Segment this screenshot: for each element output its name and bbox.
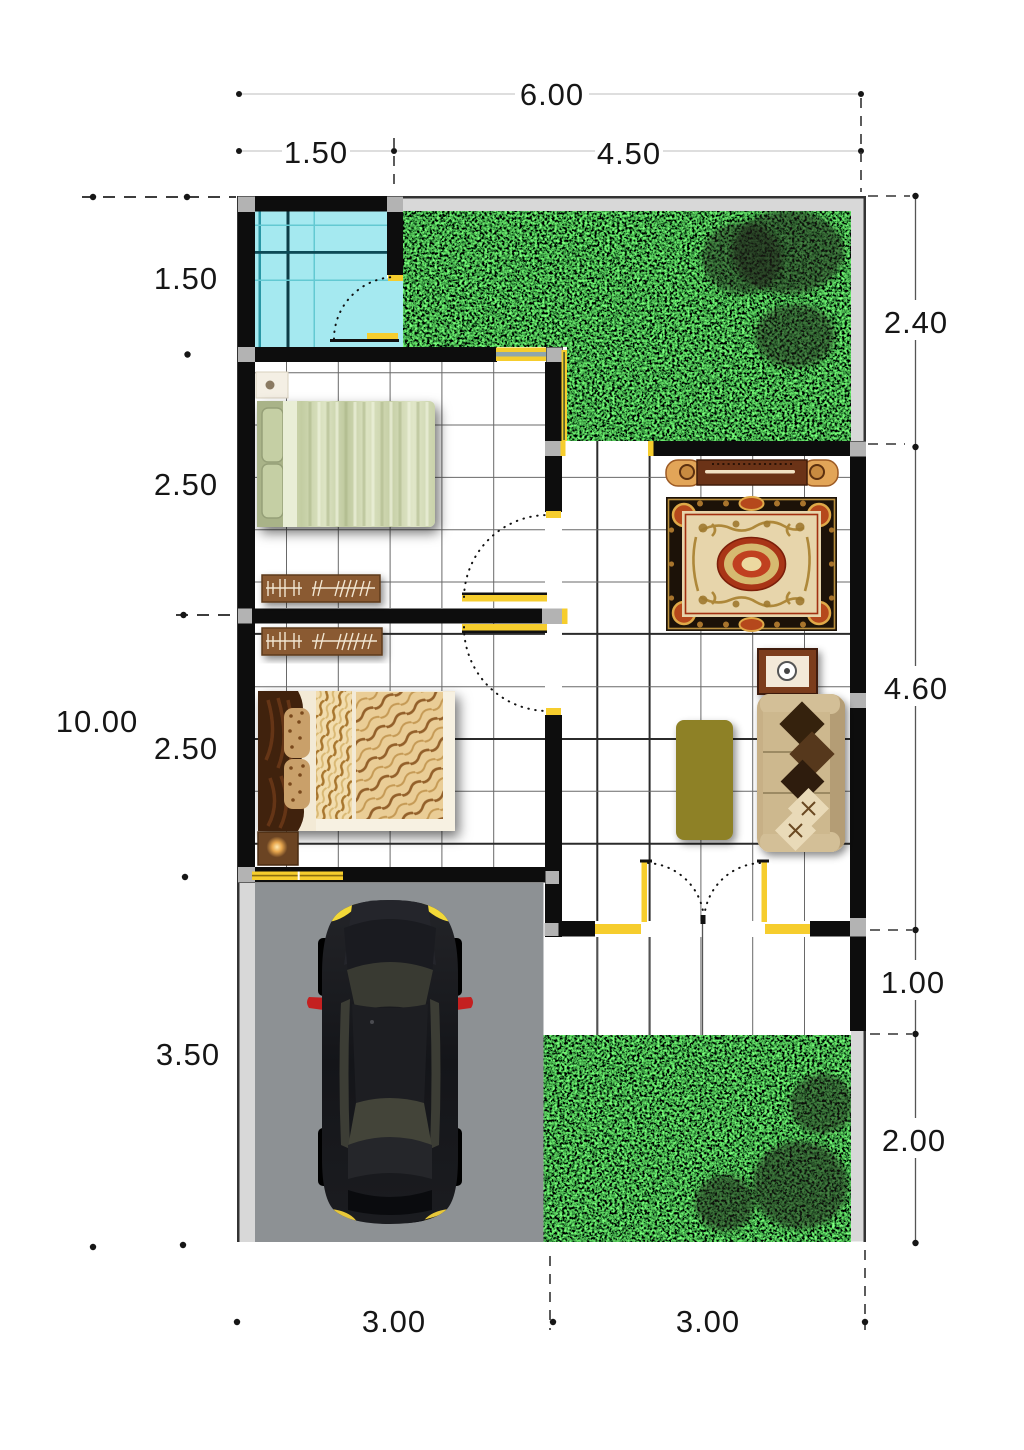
- svg-text:2.00: 2.00: [882, 1123, 946, 1158]
- svg-text:3.50: 3.50: [156, 1037, 220, 1072]
- svg-text:2.50: 2.50: [154, 731, 218, 766]
- svg-text:1.50: 1.50: [284, 135, 348, 170]
- svg-text:4.60: 4.60: [884, 671, 948, 706]
- svg-text:4.50: 4.50: [597, 136, 661, 171]
- svg-text:6.00: 6.00: [520, 77, 584, 112]
- svg-text:10.00: 10.00: [56, 704, 139, 739]
- svg-text:3.00: 3.00: [362, 1304, 426, 1339]
- svg-text:2.40: 2.40: [884, 305, 948, 340]
- svg-text:3.00: 3.00: [676, 1304, 740, 1339]
- svg-text:1.50: 1.50: [154, 261, 218, 296]
- svg-text:2.50: 2.50: [154, 467, 218, 502]
- svg-text:1.00: 1.00: [881, 965, 945, 1000]
